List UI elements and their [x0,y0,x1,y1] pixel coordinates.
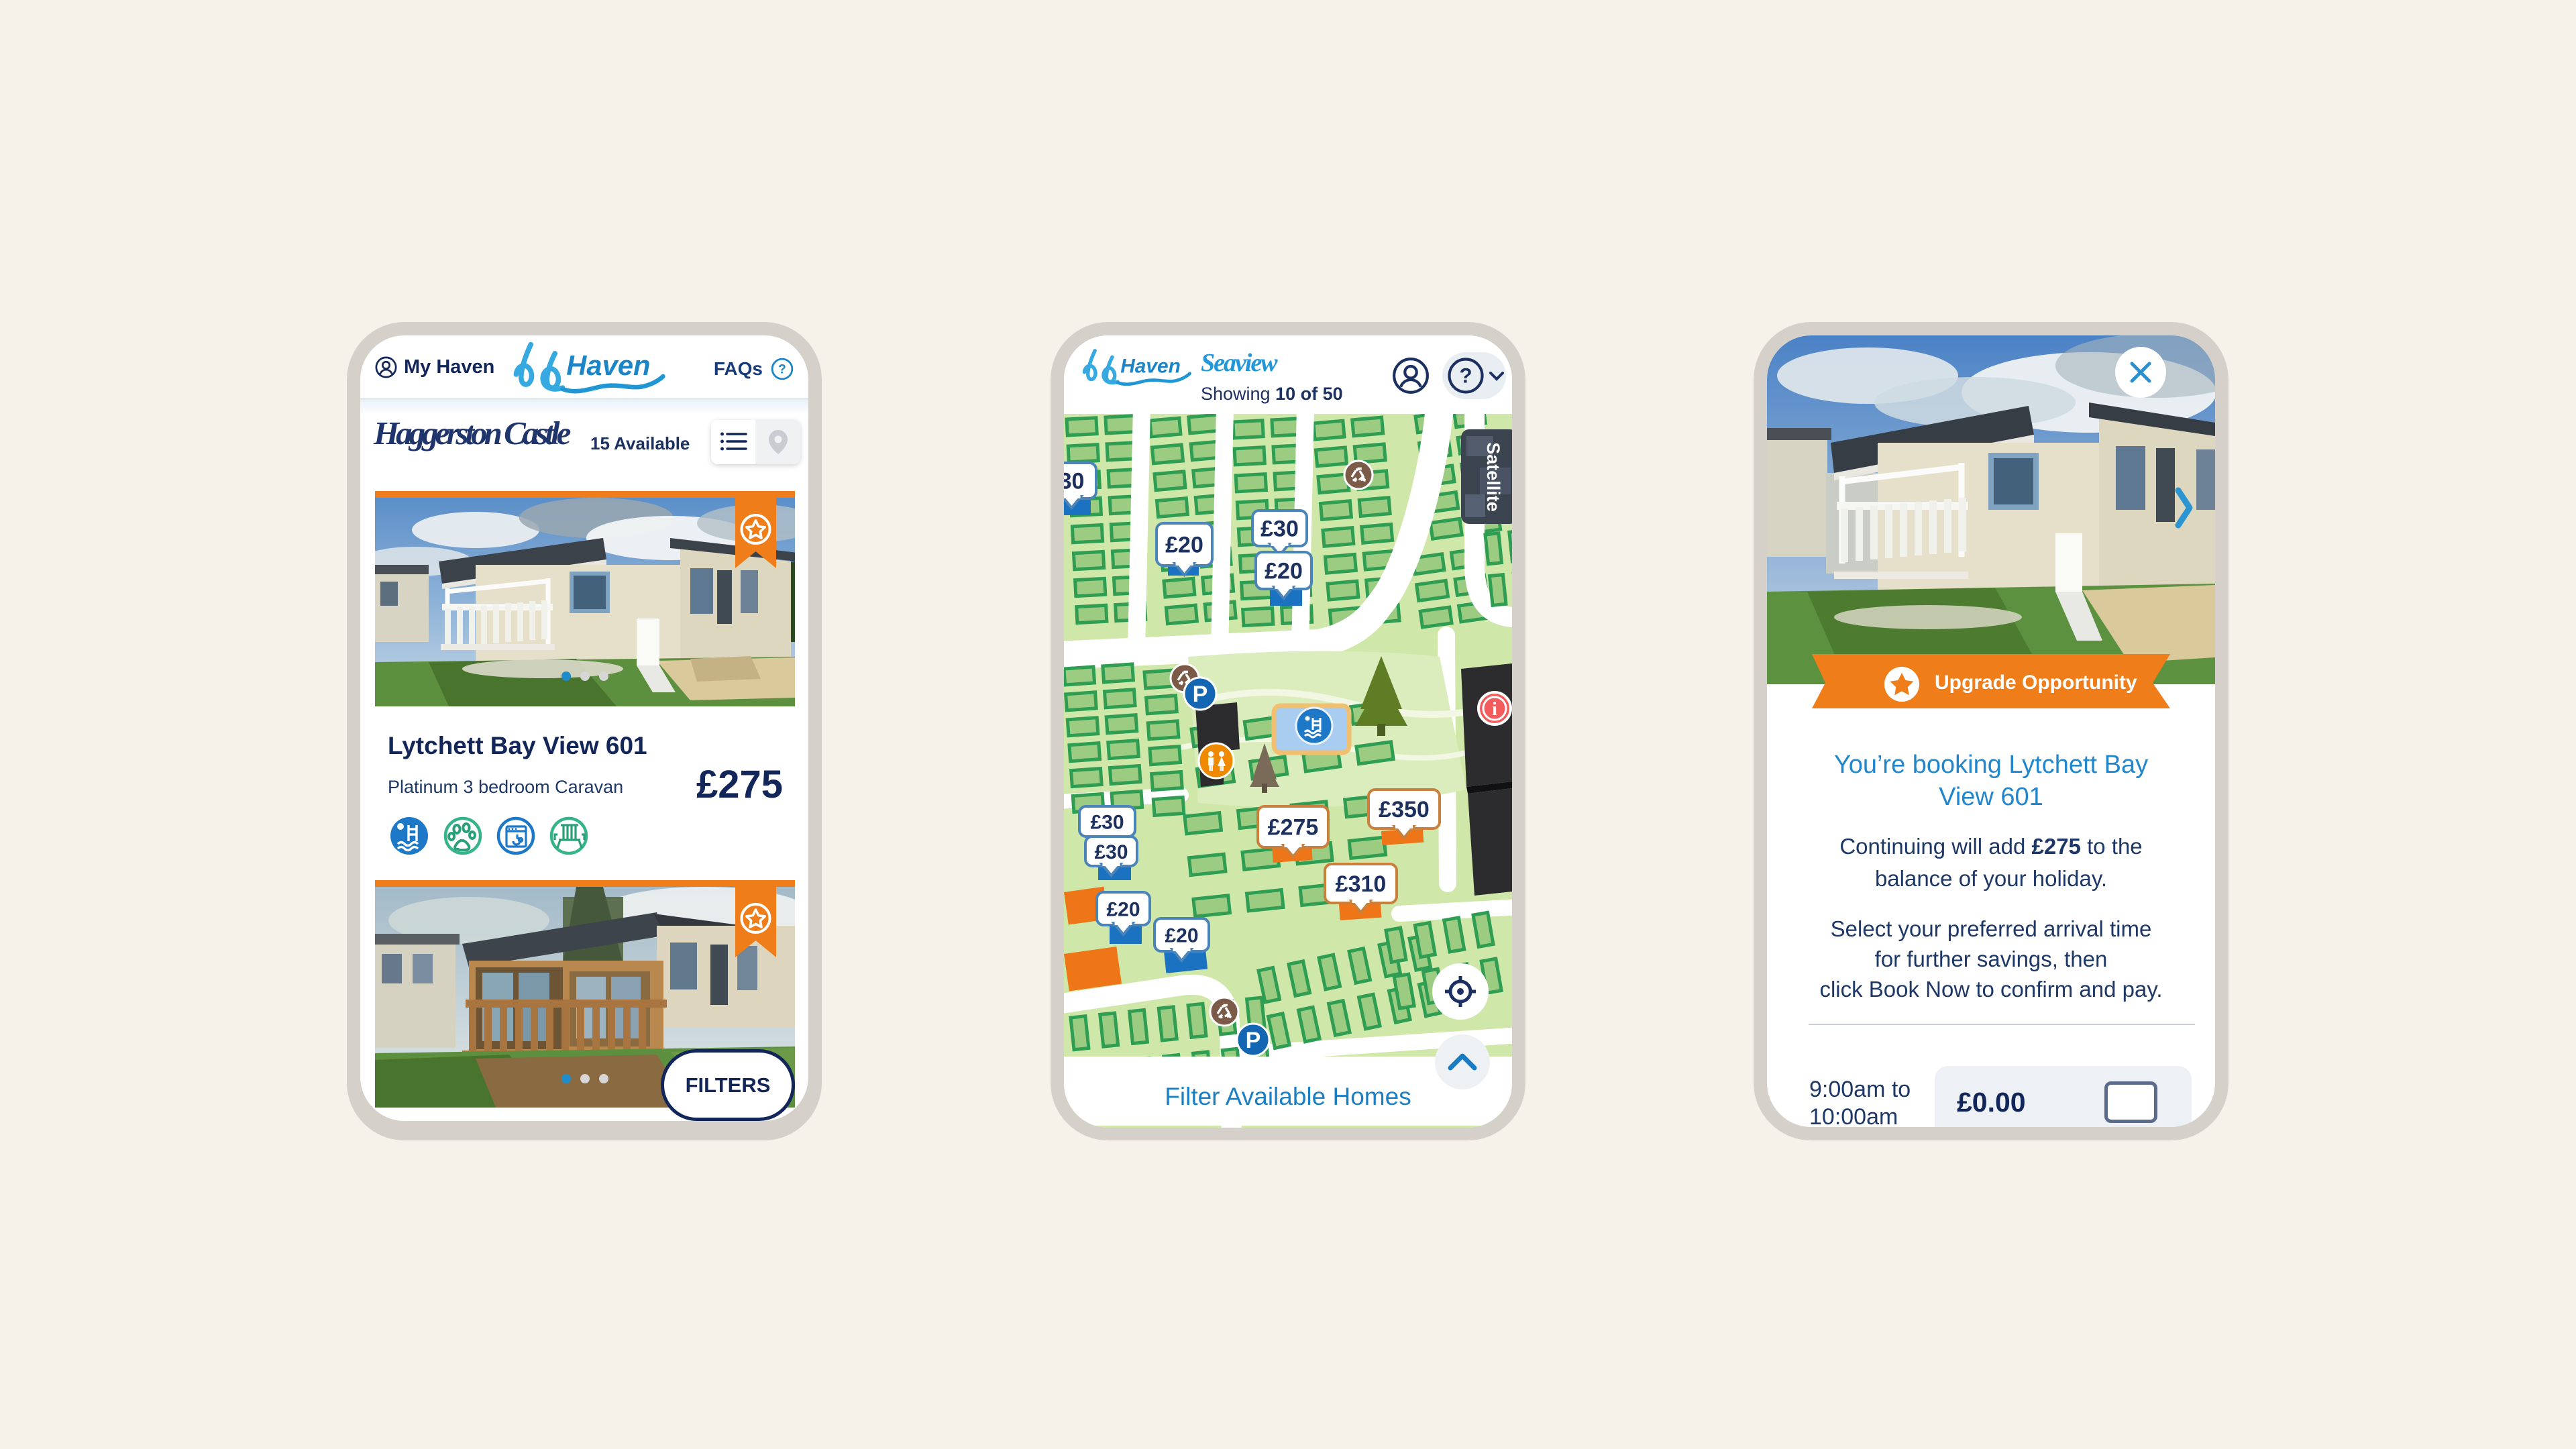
svg-text:£20: £20 [1165,533,1203,558]
svg-text:Haven: Haven [1120,355,1181,377]
svg-text:£350: £350 [1379,797,1430,822]
svg-text:P: P [1246,1028,1261,1053]
svg-text:P: P [1193,682,1208,707]
svg-text:Satellite: Satellite [1483,442,1503,512]
svg-text:?: ? [1459,364,1472,388]
svg-text:Haven: Haven [566,350,650,381]
svg-text:£30: £30 [1260,517,1299,542]
svg-text:Upgrade Opportunity: Upgrade Opportunity [1935,672,2137,694]
svg-text:i: i [1492,699,1497,720]
svg-text:£275: £275 [1268,815,1319,841]
svg-text:£310: £310 [1336,871,1387,897]
svg-text:£20: £20 [1265,559,1303,584]
svg-text:£20: £20 [1165,924,1198,947]
svg-text:?: ? [778,362,786,376]
svg-text:30: 30 [1064,469,1084,494]
svg-text:£30: £30 [1090,811,1124,833]
svg-text:£20: £20 [1106,898,1140,920]
svg-text:£30: £30 [1094,841,1128,863]
